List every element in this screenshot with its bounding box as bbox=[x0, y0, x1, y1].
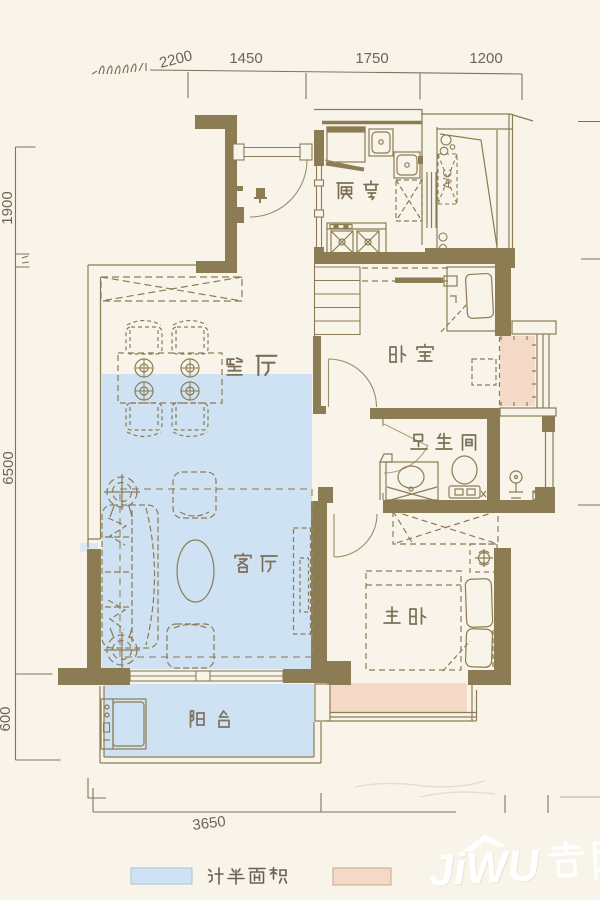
svg-text:A/C: A/C bbox=[441, 169, 455, 189]
svg-text:1750: 1750 bbox=[355, 50, 388, 67]
svg-text:600: 600 bbox=[0, 706, 14, 731]
svg-text:1450: 1450 bbox=[229, 50, 262, 67]
svg-text:6500: 6500 bbox=[0, 451, 17, 484]
svg-text:JiWU: JiWU bbox=[428, 841, 542, 896]
svg-text:1200: 1200 bbox=[469, 50, 502, 67]
svg-text:1900: 1900 bbox=[0, 191, 16, 224]
